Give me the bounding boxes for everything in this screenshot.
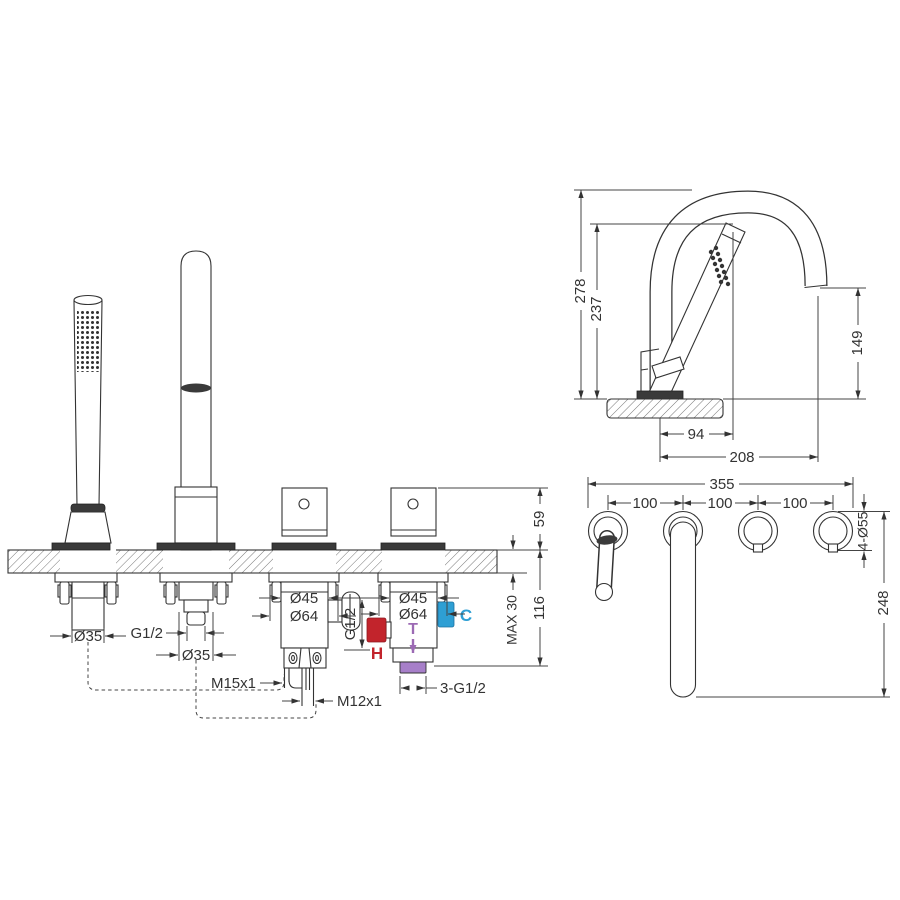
handle-notch-4 (829, 544, 838, 552)
plan-view: 355 100 100 100 (588, 476, 892, 697)
dim-overall-width: 355 (709, 476, 734, 493)
side-view-dimensions: 278 237 149 94 208 (572, 190, 866, 466)
dim-spout-diameter: Ø35 (182, 647, 210, 664)
deck-section (8, 549, 497, 574)
handset-head-plan (596, 584, 613, 601)
dim-spout-thread: G1/2 (130, 625, 163, 642)
base-plate-1 (52, 543, 110, 550)
dim-spout-reach: 208 (729, 449, 754, 466)
dim-spout-depth: 248 (875, 590, 892, 615)
dim-handset-height: 237 (588, 296, 605, 321)
dim-spacing-1: 100 (632, 495, 657, 512)
spout-joint (181, 384, 211, 393)
shank-2 (179, 582, 213, 600)
deck-hole-1 (60, 549, 116, 574)
technical-drawing-page: H T C Ø35 G1/2 Ø35 Ø45 (0, 0, 900, 900)
dim-diverter-body: Ø45 (290, 590, 318, 607)
base-plate-4 (381, 543, 445, 550)
dim-hose-thread-2: M12x1 (337, 693, 382, 710)
spout-thread-tail (187, 612, 205, 625)
mount-flange-4 (378, 573, 448, 582)
plan-dimensions-right: 4-Ø55 248 (696, 494, 892, 697)
handset-plan (596, 534, 619, 600)
mount-flange-3 (269, 573, 339, 582)
mount-flange-2 (160, 573, 232, 582)
dim-deck-thickness: MAX 30 (504, 595, 520, 645)
dim-diverter-base: Ø64 (290, 608, 318, 625)
dim-height-above-deck: 59 (531, 511, 548, 528)
handle-screw-icon (299, 499, 309, 509)
mixer-unit-section: H T C (367, 488, 472, 673)
plan-dimensions-top: 355 100 100 100 (588, 476, 853, 512)
dim-side-outlet-thread: G1/2 (342, 608, 359, 641)
dim-spacing-2: 100 (707, 495, 732, 512)
side-outlet-neck (328, 600, 342, 622)
label-cold: C (460, 606, 472, 625)
dim-hole-diameters: 4-Ø55 (855, 511, 871, 550)
deck-hole-4 (382, 549, 445, 574)
dim-handset-diameter: Ø35 (74, 628, 102, 645)
handle-screw-icon (408, 499, 418, 509)
spout-plan (671, 522, 696, 697)
plan-holes (589, 512, 853, 698)
diverter-handle (282, 488, 327, 536)
handle-notch-3 (754, 544, 763, 552)
bath-mixer-technical-drawing: H T C Ø35 G1/2 Ø35 Ø45 (0, 0, 900, 900)
dim-mixer-body: Ø45 (399, 590, 427, 607)
deck-hole-2 (163, 549, 229, 574)
dim-spacing-3: 100 (782, 495, 807, 512)
mount-flange-1 (55, 573, 117, 582)
label-hot: H (371, 644, 383, 663)
deck-hole-3 (273, 549, 336, 574)
dim-hose-thread-1: M15x1 (211, 675, 256, 692)
shank-1 (72, 582, 104, 630)
holder-collar (71, 504, 105, 512)
dim-depth-below-deck: 116 (531, 596, 548, 620)
mixed-outlet (400, 662, 426, 673)
dim-inlet-threads: 3-G1/2 (440, 680, 486, 697)
base-plate-3 (272, 543, 336, 550)
hose-tails (285, 668, 314, 706)
handset-unit-section (52, 296, 118, 631)
handset-spray-face (77, 310, 99, 372)
dim-outlet-height: 149 (849, 330, 866, 355)
spout-side-view: 278 237 149 94 208 (572, 190, 866, 466)
hot-inlet (367, 618, 386, 642)
section-view: H T C Ø35 G1/2 Ø35 Ø45 (8, 251, 548, 718)
dim-total-height: 278 (572, 278, 589, 303)
dim-handset-offset: 94 (688, 426, 705, 443)
holder-cone (65, 512, 111, 543)
deck-base-plate (637, 391, 683, 399)
label-temp: T (408, 621, 418, 638)
mixer-handle (391, 488, 436, 536)
base-plate-2 (157, 543, 235, 550)
dim-mixer-base: Ø64 (399, 606, 427, 623)
deck-slab (607, 399, 723, 418)
handset-top (74, 296, 102, 305)
spout-base (175, 487, 217, 543)
